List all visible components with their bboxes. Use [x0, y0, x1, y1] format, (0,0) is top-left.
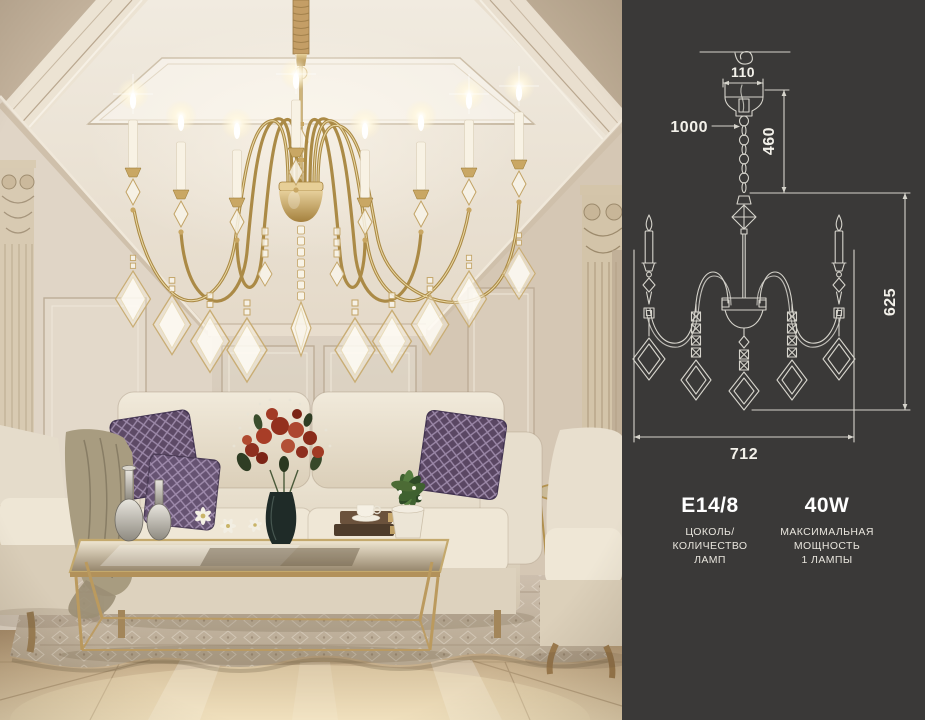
- side-assembly-right: [757, 215, 855, 400]
- room-photo: [0, 0, 622, 720]
- dim-fixture-width: 712: [634, 250, 854, 463]
- vignette: [0, 0, 622, 720]
- svg-text:110: 110: [731, 64, 755, 80]
- spec-power: 40W МАКСИМАЛЬНАЯ МОЩНОСТЬ 1 ЛАМПЫ: [758, 494, 896, 567]
- stem: [732, 196, 756, 298]
- canopy: [725, 83, 763, 116]
- dim-canopy-width: 110: [723, 64, 763, 87]
- dim-chain-drop: 460: [761, 90, 789, 193]
- side-assembly-left: [633, 215, 731, 400]
- room-photo-art: [0, 0, 622, 720]
- spec-panel: 110 1000: [622, 0, 925, 720]
- svg-text:1000: 1000: [670, 119, 708, 136]
- dim-fixture-height: 625: [752, 193, 910, 410]
- power-label: МАКСИМАЛЬНАЯ МОЩНОСТЬ 1 ЛАМПЫ: [758, 525, 896, 567]
- svg-text:712: 712: [730, 446, 758, 463]
- chain: [740, 116, 749, 193]
- dim-suspension: 1000: [670, 119, 740, 136]
- dimension-diagram: 110 1000: [622, 0, 925, 470]
- svg-text:460: 460: [761, 127, 778, 155]
- product-card: 110 1000: [0, 0, 925, 720]
- body-bowl: [722, 298, 766, 410]
- power-value: 40W: [758, 494, 896, 518]
- svg-text:625: 625: [882, 288, 899, 316]
- hanging-hook: [735, 52, 752, 65]
